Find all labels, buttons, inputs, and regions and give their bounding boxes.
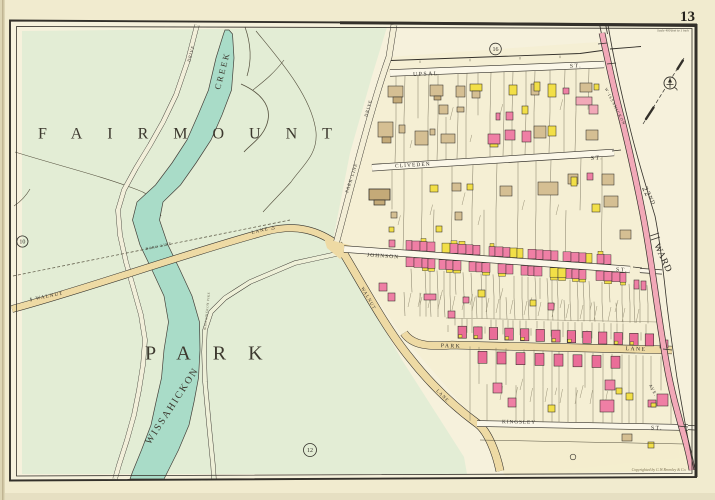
svg-text:FAIRMOUNT: FAIRMOUNT [38,126,357,143]
svg-text:10: 10 [19,240,25,246]
svg-text:PARK: PARK [145,343,285,365]
svg-text:13: 13 [680,9,695,25]
svg-text:ST.: ST. [570,63,582,69]
svg-text:Scale 400 feet to 1 inch: Scale 400 feet to 1 inch [657,29,689,33]
svg-text:Copyrighted by G.W.Bromley & C: Copyrighted by G.W.Bromley & Co. [632,468,687,472]
svg-text:ST.: ST. [616,267,629,274]
svg-text:16: 16 [493,47,499,53]
svg-text:LANE: LANE [625,346,646,353]
svg-text:UPSAL: UPSAL [413,71,439,78]
svg-text:ST.: ST. [651,425,663,431]
svg-text:12: 12 [307,448,313,454]
svg-text:ST.: ST. [591,155,604,162]
svg-text:KINGSLEY: KINGSLEY [502,419,536,426]
svg-text:PARK: PARK [441,343,462,350]
